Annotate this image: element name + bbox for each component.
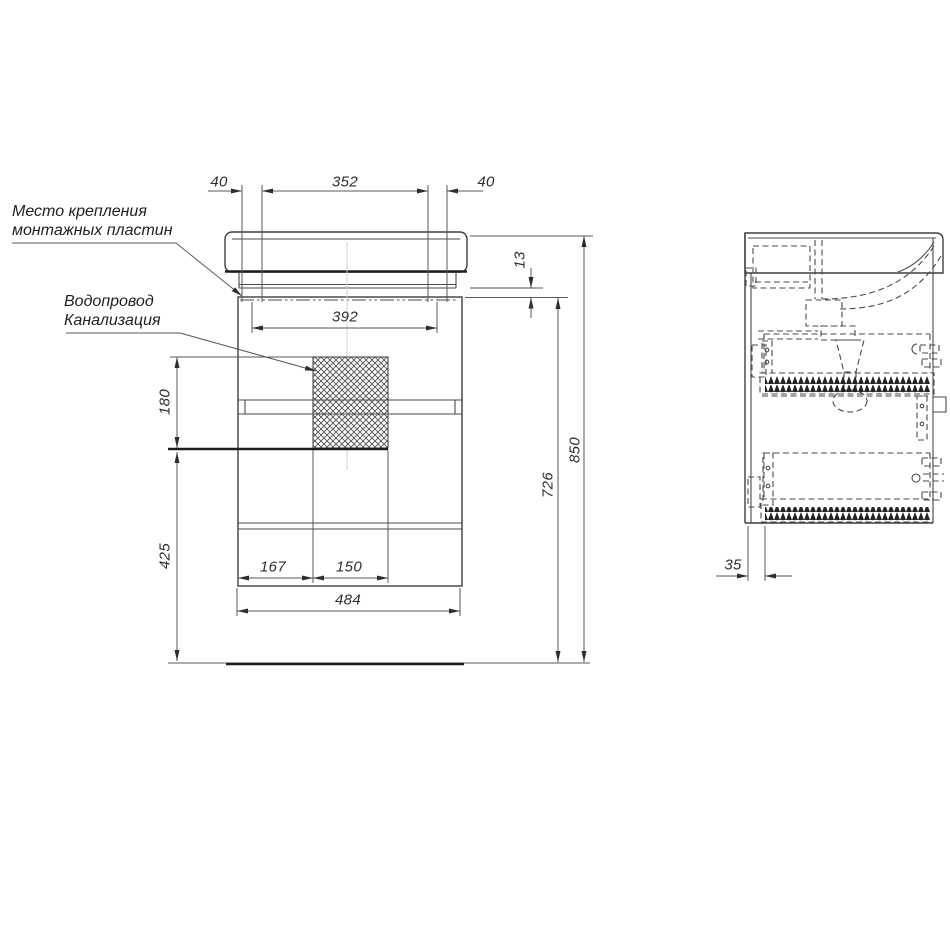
plumbing-note-line2: Канализация xyxy=(64,311,161,330)
plumbing-zone-hatch xyxy=(313,357,388,448)
mounting-plates-note: Место крепления монтажных пластин xyxy=(12,202,173,240)
dim-mount-offset-right: 40 xyxy=(477,174,494,191)
upper-slide-rail xyxy=(765,376,930,384)
lower-slide-rail xyxy=(765,507,930,514)
dim-service-zone-width: 150 xyxy=(336,559,362,576)
side-view xyxy=(745,233,946,523)
dim-overall-height: 850 xyxy=(567,437,584,463)
dim-service-zone-floor-height: 425 xyxy=(157,543,174,569)
side-basin-outline xyxy=(745,233,943,273)
plumbing-note-line1: Водопровод xyxy=(64,292,161,311)
dim-mount-offset-left: 40 xyxy=(210,174,227,191)
mounting-plates-note-line2: монтажных пластин xyxy=(12,221,173,240)
dim-service-zone-height: 180 xyxy=(157,389,174,415)
leader-lines xyxy=(12,243,316,371)
dim-mount-plate-drop: 13 xyxy=(512,251,529,268)
drawing-svg xyxy=(0,0,950,950)
plumbing-note: Водопровод Канализация xyxy=(64,292,161,330)
dim-service-zone-offset: 167 xyxy=(260,559,286,576)
basin-outline xyxy=(225,232,467,272)
technical-drawing-canvas: Место крепления монтажных пластин Водопр… xyxy=(0,0,950,950)
dim-mount-span: 352 xyxy=(332,174,358,191)
dim-mount-width: 392 xyxy=(332,309,358,326)
dim-underside-height: 726 xyxy=(540,472,557,498)
mounting-plates-note-line1: Место крепления xyxy=(12,202,173,221)
dim-cabinet-width: 484 xyxy=(335,592,361,609)
front-view xyxy=(168,232,590,664)
dim-back-panel-offset: 35 xyxy=(724,557,741,574)
